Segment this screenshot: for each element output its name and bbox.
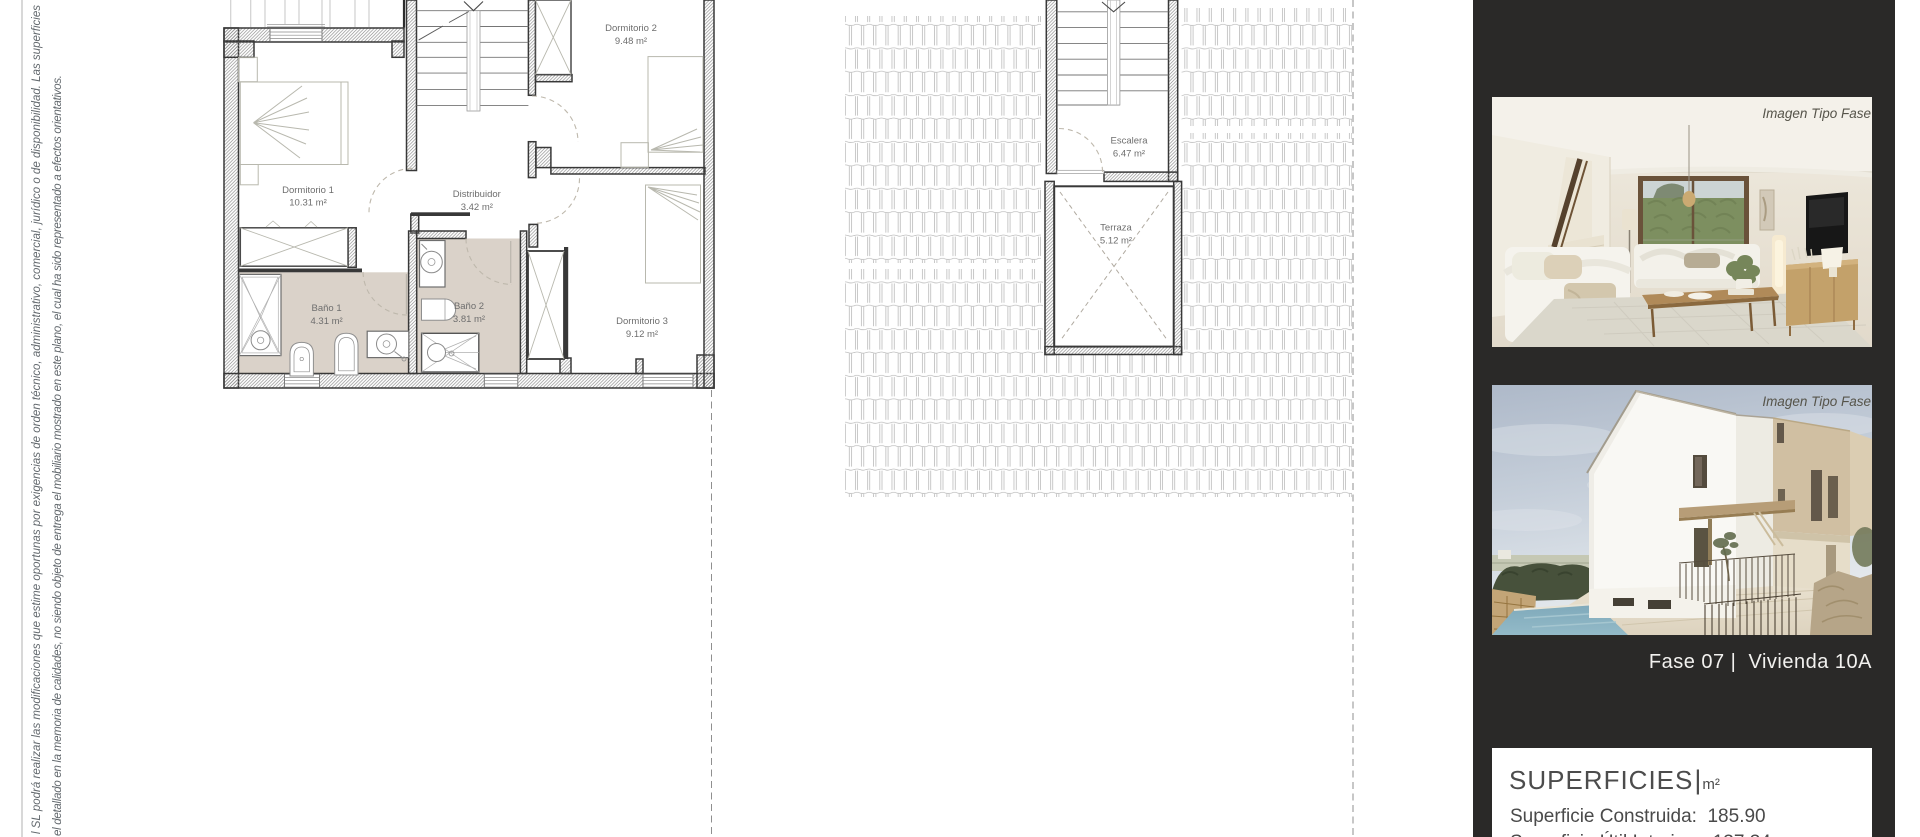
svg-text:5.12 m²: 5.12 m² xyxy=(1100,236,1132,247)
svg-text:Escalera: Escalera xyxy=(1111,136,1149,147)
svg-text:Terraza: Terraza xyxy=(1100,223,1132,234)
svg-text:Dormitorio 2: Dormitorio 2 xyxy=(605,23,657,34)
svg-text:l SL podrá realizar las modifi: l SL podrá realizar las modificaciones q… xyxy=(31,5,43,834)
svg-text:10.31 m²: 10.31 m² xyxy=(289,198,327,209)
svg-text:9.12 m²: 9.12 m² xyxy=(626,329,658,340)
svg-text:4.31 m²: 4.31 m² xyxy=(310,316,342,327)
svg-text:Imagen Tipo Fase: Imagen Tipo Fase xyxy=(1762,106,1871,121)
svg-text:6.47 m²: 6.47 m² xyxy=(1113,149,1145,160)
svg-text:Dormitorio 1: Dormitorio 1 xyxy=(282,185,334,196)
svg-text:Imagen Tipo Fase: Imagen Tipo Fase xyxy=(1762,394,1871,409)
svg-text:Distribuidor: Distribuidor xyxy=(453,189,501,200)
svg-text:Dormitorio 3: Dormitorio 3 xyxy=(616,316,668,327)
svg-text:Baño 1: Baño 1 xyxy=(312,303,342,314)
svg-text:3.81 m²: 3.81 m² xyxy=(453,314,485,325)
svg-text:Baño 2: Baño 2 xyxy=(454,301,484,312)
svg-text:9.48 m²: 9.48 m² xyxy=(615,36,647,47)
svg-text:el detallado en la memoria de: el detallado en la memoria de calidades,… xyxy=(52,75,64,836)
svg-text:3.42 m²: 3.42 m² xyxy=(461,202,493,213)
